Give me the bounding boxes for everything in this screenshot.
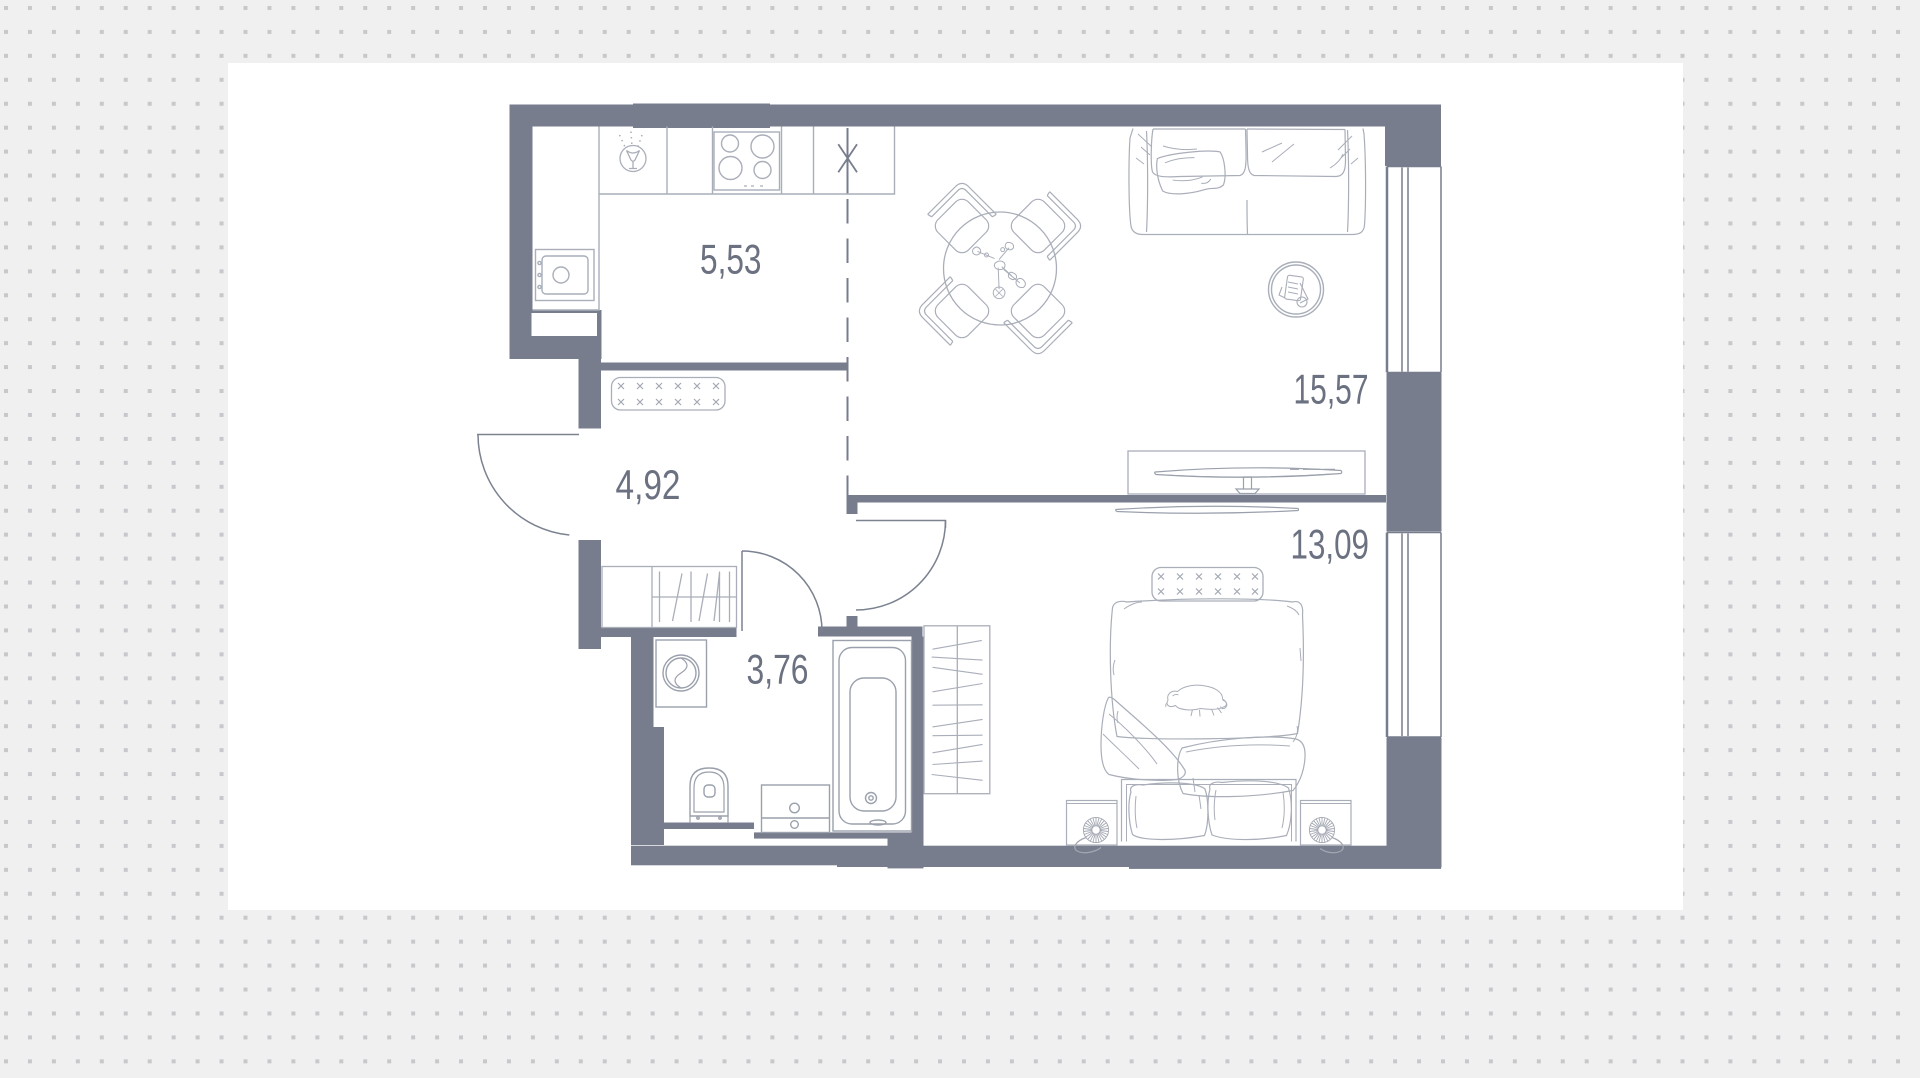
svg-text:13,09: 13,09 — [1291, 521, 1370, 568]
svg-text:5,53: 5,53 — [700, 236, 762, 283]
svg-text:15,57: 15,57 — [1294, 366, 1369, 413]
svg-text:3,76: 3,76 — [747, 646, 809, 693]
svg-text:4,92: 4,92 — [616, 461, 681, 508]
